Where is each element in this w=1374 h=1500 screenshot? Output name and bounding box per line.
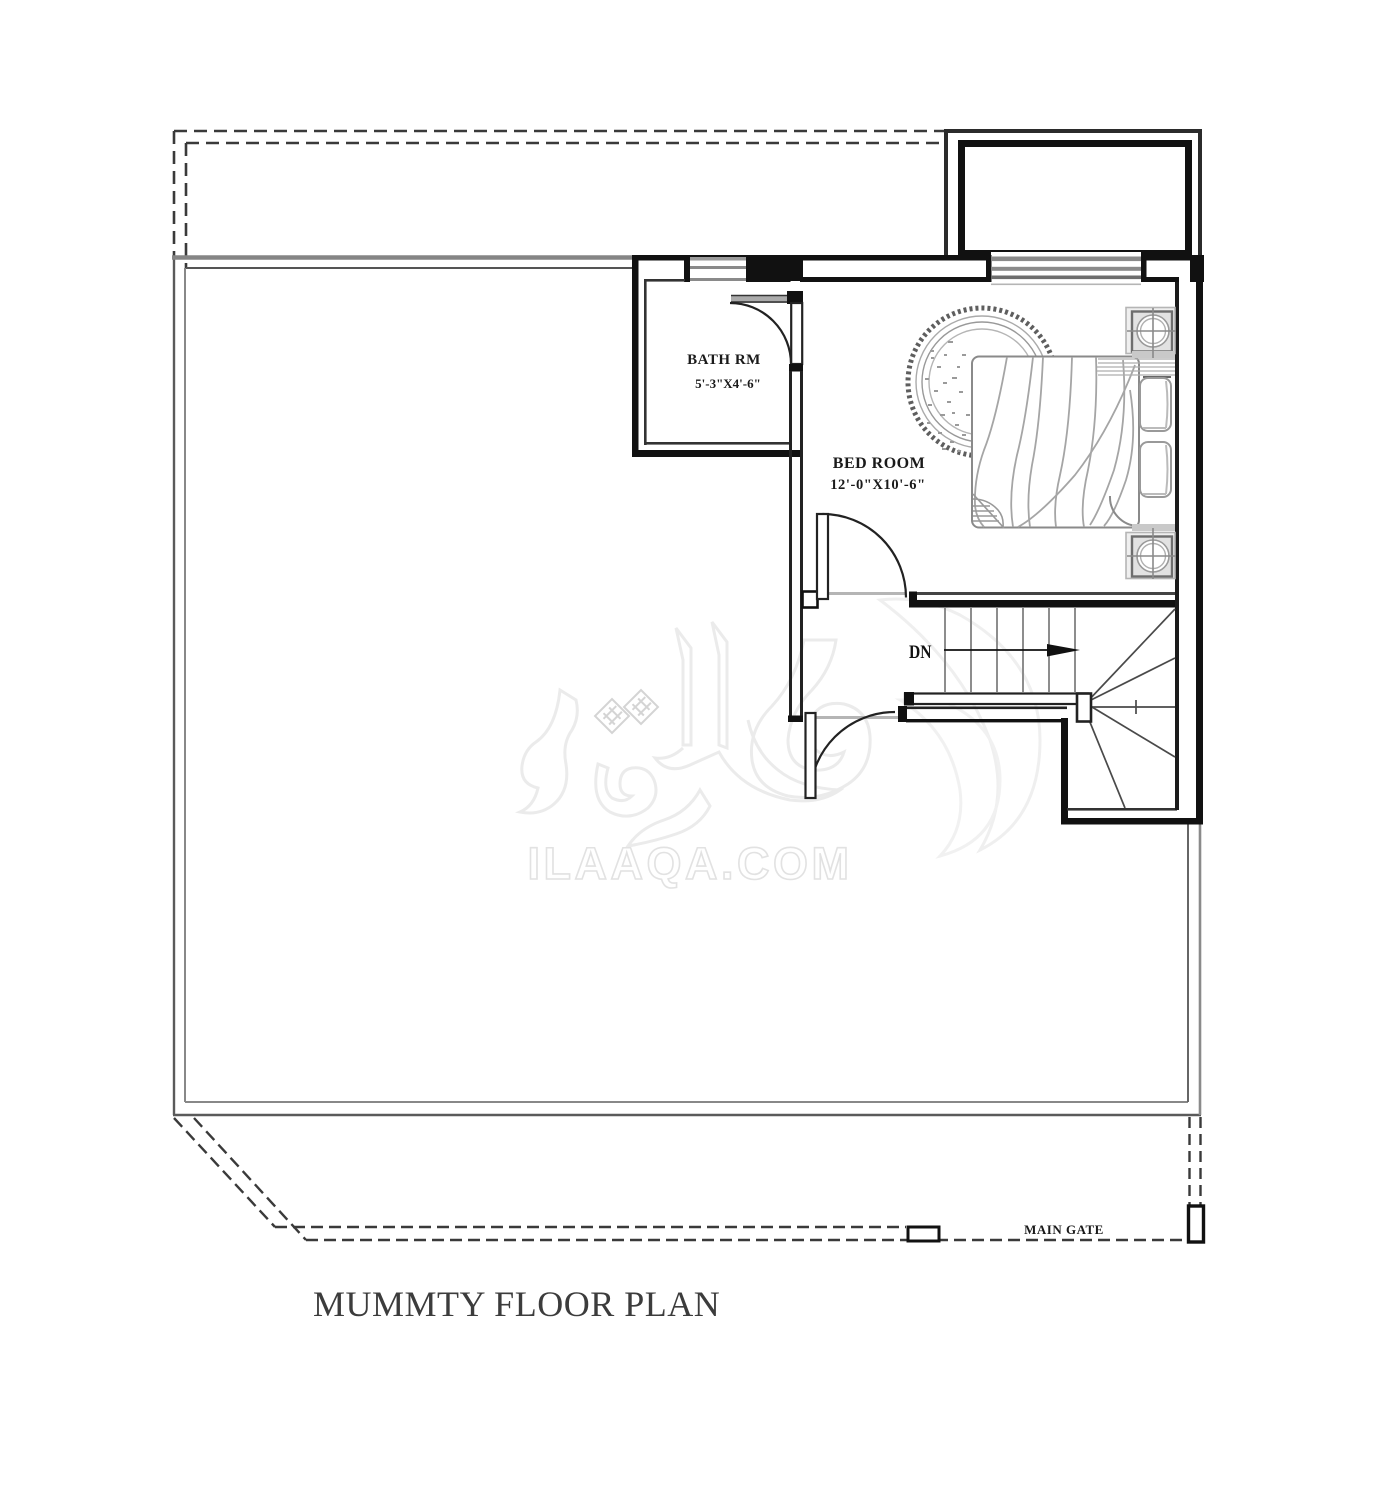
svg-text:BATH RM: BATH RM (687, 352, 761, 368)
svg-text:DN: DN (909, 642, 932, 663)
svg-text:MUMMTY FLOOR PLAN: MUMMTY FLOOR PLAN (313, 1284, 720, 1324)
svg-text:BED ROOM: BED ROOM (833, 455, 925, 472)
svg-text:5'-3"X4'-6": 5'-3"X4'-6" (695, 376, 761, 391)
svg-text:MAIN GATE: MAIN GATE (1024, 1222, 1104, 1237)
svg-text:ILAAQA.COM: ILAAQA.COM (528, 838, 853, 889)
svg-text:12'-0"X10'-6": 12'-0"X10'-6" (830, 477, 926, 493)
